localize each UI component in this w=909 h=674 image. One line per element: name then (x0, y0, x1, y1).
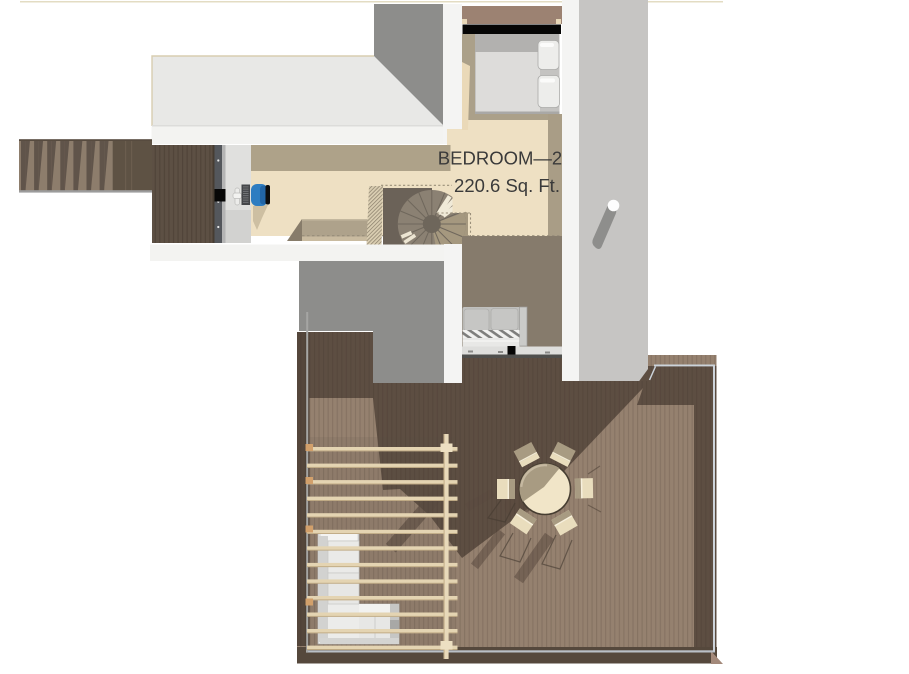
svg-text:220.6 Sq. Ft.: 220.6 Sq. Ft. (454, 175, 560, 196)
svg-text:BEDROOM—2: BEDROOM—2 (438, 148, 562, 169)
